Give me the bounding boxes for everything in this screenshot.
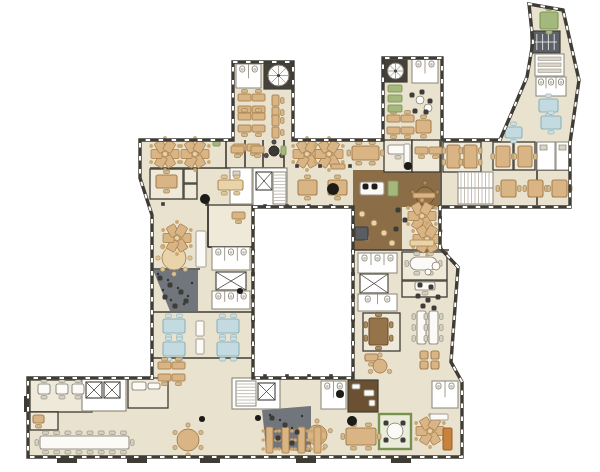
standing-desk-row — [282, 427, 289, 453]
chair — [405, 111, 411, 115]
stool — [261, 438, 265, 442]
chair — [54, 451, 60, 455]
chair — [491, 154, 495, 160]
chair — [172, 272, 176, 276]
chair — [424, 314, 428, 320]
desk — [387, 127, 400, 134]
toilet-seat — [253, 68, 256, 71]
toilet-seat — [242, 295, 245, 298]
chair — [65, 431, 71, 435]
desk — [251, 146, 264, 153]
loose-chair — [401, 421, 406, 426]
table — [40, 436, 129, 449]
floor-plan: office-building-floor-plan — [0, 0, 600, 472]
chair — [315, 419, 319, 423]
chair — [313, 144, 317, 148]
chair — [412, 325, 416, 331]
stool — [309, 429, 313, 433]
column-dot — [336, 390, 344, 398]
round-table — [177, 429, 199, 451]
chair — [376, 313, 382, 317]
chair — [405, 261, 409, 267]
chair — [256, 133, 262, 137]
chair — [221, 192, 227, 196]
toilet-seat — [217, 251, 220, 254]
stool — [322, 429, 326, 433]
table — [352, 146, 379, 160]
chair — [188, 256, 192, 260]
chair — [59, 396, 65, 400]
desk — [252, 94, 265, 101]
chair — [177, 314, 183, 318]
cabinet-row — [538, 57, 561, 60]
loose-chair — [158, 276, 163, 281]
standing-desk-row — [266, 427, 273, 453]
stool — [306, 447, 310, 451]
stool — [277, 447, 281, 451]
chair — [424, 325, 428, 331]
chair — [220, 358, 226, 362]
desk — [238, 94, 251, 101]
bench — [364, 390, 374, 396]
chair — [242, 109, 248, 113]
column-dot — [327, 183, 339, 195]
chair — [220, 337, 226, 341]
cluster-center — [174, 235, 179, 240]
loose-chair — [276, 436, 281, 441]
chair — [305, 197, 311, 201]
floor-plan-canvas: office-building-floor-plan — [0, 0, 600, 472]
desk — [158, 374, 171, 381]
standing-desk-row — [314, 427, 321, 453]
chair — [175, 252, 179, 256]
stool — [432, 262, 440, 270]
chair — [149, 160, 153, 164]
toilet-seat — [540, 81, 543, 84]
chair — [242, 90, 248, 94]
stool — [293, 447, 297, 451]
bench — [196, 231, 206, 267]
cabinet — [443, 428, 452, 450]
toilet-seat — [366, 298, 369, 301]
chair — [256, 90, 262, 94]
bench — [369, 400, 375, 406]
stool — [306, 438, 310, 442]
cluster-center — [419, 213, 424, 218]
chair — [43, 451, 49, 455]
loose-chair — [428, 99, 433, 104]
chair — [272, 140, 276, 144]
loose-chair — [290, 441, 295, 446]
toilet-seat — [242, 251, 245, 254]
chair — [131, 440, 135, 446]
chair — [207, 144, 211, 148]
room — [208, 205, 253, 247]
chair — [35, 440, 39, 446]
bench — [331, 164, 345, 169]
bench — [430, 414, 448, 420]
chair — [98, 431, 104, 435]
bench — [388, 85, 402, 92]
stool — [274, 447, 278, 451]
carpet-speck — [301, 415, 303, 417]
chair — [369, 162, 375, 166]
stool — [389, 240, 395, 246]
chair — [390, 335, 394, 341]
loose-chair — [429, 285, 434, 290]
table — [56, 384, 68, 394]
bench — [196, 339, 204, 354]
chair — [189, 228, 193, 232]
chair — [87, 451, 93, 455]
round-table — [269, 146, 279, 156]
chair — [313, 160, 317, 164]
chair — [291, 160, 295, 164]
chair — [546, 94, 552, 98]
bench — [213, 141, 220, 146]
chair — [281, 130, 285, 136]
chair — [87, 431, 93, 435]
chair — [414, 437, 418, 441]
loose-chair — [421, 304, 426, 309]
chair — [161, 228, 165, 232]
chair — [479, 148, 483, 154]
chair — [175, 220, 179, 224]
table — [464, 145, 477, 168]
chair — [305, 175, 311, 179]
cluster-center — [304, 151, 309, 156]
chair — [428, 445, 432, 449]
toilet-seat — [338, 385, 341, 388]
chair — [335, 175, 341, 179]
loose-chair — [416, 294, 421, 299]
table — [429, 311, 438, 344]
chair — [523, 186, 527, 192]
carpet-speck — [191, 282, 193, 284]
chair — [231, 337, 237, 341]
chair — [548, 131, 554, 135]
carpet-speck — [170, 299, 172, 301]
round-table — [373, 359, 387, 373]
fixture — [559, 145, 566, 150]
chair — [120, 451, 126, 455]
chair — [420, 198, 424, 202]
chair — [235, 154, 241, 158]
chair — [327, 168, 331, 172]
chair — [163, 168, 167, 172]
toilet-seat — [363, 257, 366, 260]
chair — [421, 135, 427, 139]
table — [217, 319, 239, 333]
loose-chair — [410, 93, 415, 98]
table — [148, 383, 160, 389]
table — [541, 116, 561, 129]
chair — [364, 335, 368, 341]
loose-chair — [283, 423, 288, 428]
column — [295, 164, 299, 168]
table — [540, 12, 558, 29]
table — [72, 384, 84, 394]
chair — [234, 175, 240, 179]
chair — [395, 156, 401, 160]
cooktop — [363, 184, 368, 189]
column — [161, 202, 165, 206]
chair — [511, 122, 517, 126]
chair — [511, 140, 517, 144]
loose-chair — [436, 295, 441, 300]
chair — [305, 168, 309, 172]
column-dot — [237, 288, 243, 294]
chair — [256, 109, 262, 113]
chair — [442, 148, 446, 154]
cluster-center — [326, 151, 331, 156]
bench — [410, 240, 434, 246]
chair — [43, 431, 49, 435]
spiral-center — [394, 69, 397, 72]
desk — [238, 113, 251, 120]
chair — [183, 267, 187, 271]
loose-chair — [403, 218, 408, 223]
table — [505, 127, 522, 138]
stool — [381, 230, 387, 236]
chair — [391, 135, 397, 139]
cabinet-row — [538, 69, 561, 72]
bench — [352, 384, 360, 389]
stool — [290, 447, 294, 451]
desk — [232, 212, 245, 219]
chair — [231, 314, 237, 318]
toilet-seat — [437, 385, 440, 388]
bench — [388, 181, 398, 196]
chair — [76, 431, 82, 435]
chair — [98, 451, 104, 455]
column-dot — [255, 415, 261, 421]
loose-chair — [384, 421, 389, 426]
loose-chair — [384, 438, 389, 443]
chair — [366, 447, 372, 451]
carpet-speck — [187, 295, 189, 297]
chair — [291, 144, 295, 148]
stool — [261, 447, 265, 451]
stool — [322, 438, 326, 442]
desk — [401, 127, 414, 134]
chair — [220, 314, 226, 318]
desk — [252, 113, 265, 120]
column — [348, 164, 352, 168]
toilet-seat — [450, 385, 453, 388]
chair — [376, 347, 382, 351]
desk — [231, 146, 244, 153]
chair — [156, 256, 160, 260]
chair — [414, 272, 420, 276]
table — [298, 180, 317, 195]
chair — [193, 168, 197, 172]
carpet-speck — [167, 279, 169, 281]
stool — [309, 447, 313, 451]
desk — [387, 115, 400, 122]
stool — [416, 96, 424, 104]
stool — [371, 220, 377, 226]
chair — [440, 325, 444, 331]
chair — [411, 229, 415, 233]
stool — [274, 429, 278, 433]
chair — [406, 206, 410, 210]
loose-chair — [432, 306, 437, 311]
chair — [421, 115, 427, 119]
table — [132, 382, 146, 390]
toilet-seat — [417, 63, 420, 66]
table — [420, 351, 428, 359]
table — [217, 342, 239, 356]
chair — [356, 162, 362, 166]
stool — [277, 429, 281, 433]
chair — [440, 314, 444, 320]
table — [163, 319, 185, 333]
bench — [388, 105, 402, 112]
chair — [41, 396, 47, 400]
chair — [496, 186, 500, 192]
table — [156, 175, 177, 188]
chair — [199, 445, 203, 449]
fixture — [540, 145, 547, 150]
loose-chair — [184, 299, 189, 304]
desk — [272, 95, 279, 106]
table — [420, 361, 428, 369]
desk — [415, 147, 428, 154]
cluster-center — [192, 151, 197, 156]
chair — [425, 221, 429, 225]
chair — [381, 150, 385, 156]
chair — [414, 421, 418, 425]
bench — [281, 146, 286, 155]
desk — [238, 125, 251, 132]
desk — [272, 115, 279, 126]
desk — [172, 374, 185, 381]
chair — [281, 118, 285, 124]
chair — [161, 244, 165, 248]
column-dot — [404, 162, 412, 170]
chair — [177, 337, 183, 341]
chair — [518, 186, 522, 192]
table — [431, 351, 439, 359]
toilet-seat — [241, 68, 244, 71]
table — [346, 428, 376, 445]
table — [33, 415, 44, 423]
chair — [459, 159, 463, 165]
toilet-seat — [560, 81, 563, 84]
toilet-seat — [430, 63, 433, 66]
bench — [355, 227, 368, 240]
chair — [423, 181, 427, 185]
chair — [162, 382, 168, 386]
chair — [179, 160, 183, 164]
chair — [281, 98, 285, 104]
chair — [176, 382, 182, 386]
chair — [434, 206, 438, 210]
chair — [433, 155, 439, 159]
chair — [440, 336, 444, 342]
chair — [189, 244, 193, 248]
table — [539, 99, 558, 112]
loose-chair — [179, 290, 184, 295]
chair — [179, 144, 183, 148]
table — [528, 180, 543, 197]
carpet-speck — [177, 287, 179, 289]
chair — [255, 154, 261, 158]
round-table — [387, 423, 403, 439]
loose-chair — [270, 416, 275, 421]
chair — [65, 451, 71, 455]
chair — [368, 369, 372, 373]
stool — [309, 438, 313, 442]
cluster-center — [162, 151, 167, 156]
chair — [236, 220, 242, 224]
carpet-speck — [162, 289, 164, 291]
desk — [401, 115, 414, 122]
chair — [347, 150, 351, 156]
chair — [412, 336, 416, 342]
table — [163, 342, 185, 356]
toilet-seat — [230, 251, 233, 254]
chair — [207, 160, 211, 164]
desk — [429, 147, 442, 154]
table — [501, 180, 516, 197]
bench — [388, 95, 402, 102]
chair — [414, 252, 420, 256]
table — [518, 146, 532, 167]
table — [552, 180, 567, 197]
chair — [405, 135, 411, 139]
stool — [261, 429, 265, 433]
desk — [252, 125, 265, 132]
toilet-seat — [376, 257, 379, 260]
chair — [164, 190, 170, 194]
cooktop — [372, 184, 377, 189]
stool — [306, 429, 310, 433]
chair — [378, 434, 382, 440]
toilet-seat — [550, 81, 553, 84]
chair — [76, 451, 82, 455]
chair — [166, 337, 172, 341]
chair — [387, 369, 391, 373]
stool — [359, 211, 365, 217]
carpet-speck — [279, 419, 281, 421]
chair — [75, 396, 81, 400]
stool — [290, 429, 294, 433]
cabinet-row — [538, 63, 561, 66]
loose-chair — [394, 227, 399, 232]
chair — [281, 110, 285, 116]
chair — [109, 451, 115, 455]
chair — [149, 144, 153, 148]
stool — [322, 447, 326, 451]
chair — [366, 423, 372, 427]
table — [218, 180, 243, 190]
chair — [442, 421, 446, 425]
stool — [425, 269, 431, 275]
chair — [341, 144, 345, 148]
chair — [36, 425, 42, 429]
loose-chair — [163, 295, 168, 300]
loose-chair — [426, 298, 431, 303]
chair — [173, 445, 177, 449]
column — [318, 164, 322, 168]
chair — [419, 155, 425, 159]
chair — [425, 253, 429, 257]
loose-chair — [295, 430, 300, 435]
chair — [422, 292, 428, 296]
desk — [272, 127, 279, 138]
